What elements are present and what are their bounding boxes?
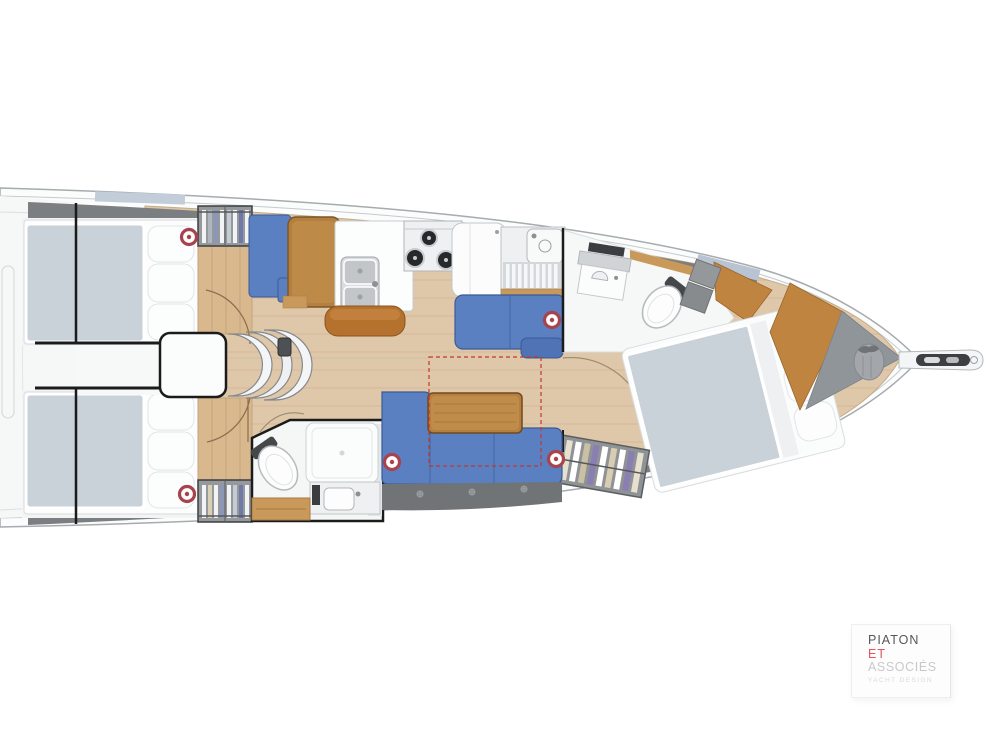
logo-line-1: PIATON (868, 634, 950, 648)
aft-starboard-cabin (22, 390, 252, 522)
brand-logo: PIATON ET ASSOCIÉS YACHT DESIGN (851, 624, 951, 698)
shower (306, 423, 378, 483)
pillow (148, 394, 194, 430)
settee-end-cushion (521, 338, 563, 358)
sink-bowl (324, 488, 354, 510)
bowsprit (899, 350, 983, 370)
sink-drainer-unit (501, 227, 565, 299)
speaker-icon (549, 452, 564, 467)
wardrobe (198, 206, 252, 246)
pillow (148, 264, 194, 302)
speaker-icon (180, 487, 195, 502)
nav-station (249, 215, 340, 308)
wardrobe (198, 480, 252, 522)
faucet-icon (372, 281, 378, 287)
drain-icon (340, 451, 345, 456)
leather-ottoman (325, 306, 405, 336)
speaker-icon (385, 455, 400, 470)
pillow (148, 432, 194, 470)
fixture (312, 485, 320, 505)
fridge (452, 223, 506, 297)
logo-line-3: ASSOCIÉS (868, 661, 950, 675)
anchor-bag (854, 344, 884, 380)
bed-mattress (26, 394, 144, 508)
logo-subtitle: YACHT DESIGN (868, 677, 950, 684)
fridge-handle (495, 230, 499, 234)
cabin-wood-floor (198, 398, 252, 480)
logo-line-2: ET (868, 648, 950, 662)
faucet-icon (532, 234, 537, 239)
head-vanity (310, 482, 380, 514)
nav-ledge (283, 296, 307, 308)
speaker-icon (182, 230, 197, 245)
aft-port-cabin (22, 206, 252, 346)
floor-plan-svg (0, 0, 993, 745)
speaker-icon (545, 313, 560, 328)
settee-locker-band (382, 482, 562, 510)
mast-foot (278, 338, 291, 356)
saloon-table (428, 393, 522, 433)
double-sink (341, 257, 379, 311)
engine-box (160, 333, 226, 397)
page: PIATON ET ASSOCIÉS YACHT DESIGN (0, 0, 993, 745)
faucet-icon (356, 492, 361, 497)
bed-mattress (26, 224, 144, 342)
